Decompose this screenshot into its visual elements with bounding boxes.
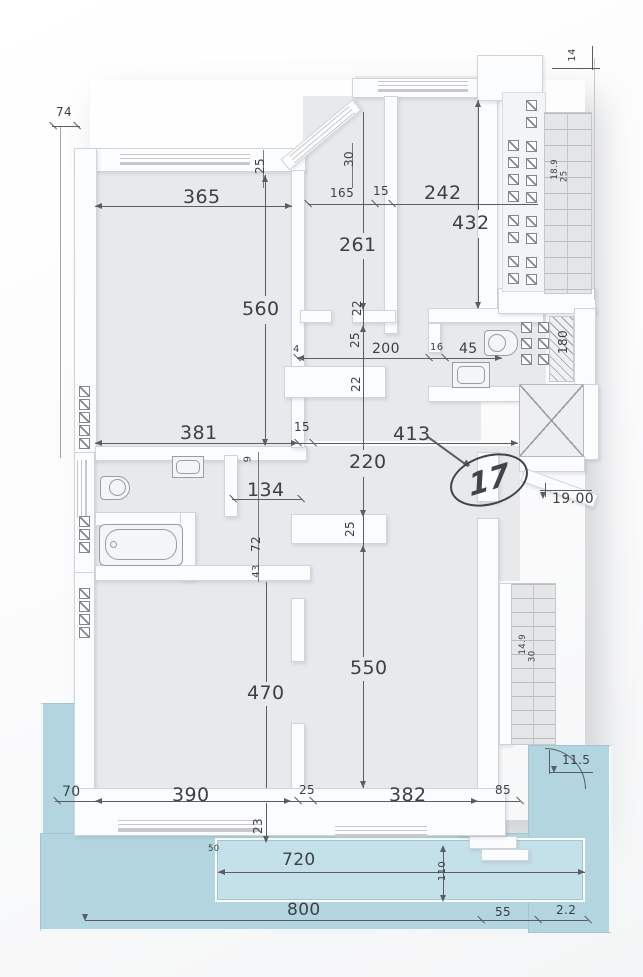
dim-label-74: 74 <box>56 106 72 118</box>
dim-line-560a <box>265 175 266 296</box>
dim-label-25b: 25 <box>344 521 356 537</box>
dim-label-4: 4 <box>293 345 300 355</box>
glass-block-icon <box>526 257 537 268</box>
glass-block-icon <box>538 354 549 365</box>
glass-block-icon <box>508 191 519 202</box>
dim-label-220: 220 <box>349 453 386 472</box>
section-marker-line <box>552 68 600 69</box>
dim-label-15-top: 15 <box>373 185 389 197</box>
glass-block-icon <box>521 338 532 349</box>
glass-block-icon <box>521 354 532 365</box>
terrace-step <box>481 849 529 861</box>
dim-arrow <box>360 545 366 552</box>
dim-label-25-top: 25 <box>254 158 266 174</box>
dim-line-center-c <box>363 477 364 657</box>
level-terrace-label: 11.5 <box>562 754 590 766</box>
glass-block-icon <box>526 100 537 111</box>
glass-block-icon <box>526 216 537 227</box>
dim-label-261: 261 <box>339 236 376 255</box>
elevator-x-icon <box>519 384 584 457</box>
glass-block-icon <box>79 399 90 410</box>
glass-block-icon <box>526 141 537 152</box>
window-bottom-left <box>118 820 260 832</box>
wall-elevator-right <box>583 384 599 460</box>
dim-arrow <box>360 325 366 332</box>
dim-line-381-413 <box>95 443 518 444</box>
dim-line-560b <box>265 324 266 445</box>
dim-label-15b: 15 <box>294 421 310 433</box>
dim-arrow <box>475 100 481 107</box>
dim-label-560: 560 <box>242 300 279 319</box>
dim-arrow <box>440 895 446 902</box>
dim-label-165: 165 <box>330 187 354 199</box>
glass-block-icon <box>79 516 90 527</box>
dim-label-365: 365 <box>183 188 220 207</box>
dim-arrow <box>95 798 102 804</box>
glass-block-icon <box>79 614 90 625</box>
glass-block-icon <box>508 157 519 168</box>
glass-block-icon <box>526 175 537 186</box>
window-bottom-middle <box>335 826 427 837</box>
glass-block-icon <box>508 140 519 151</box>
dim-line-200-45 <box>297 358 502 359</box>
stairs-upper-label-a: 18.9 <box>551 159 560 180</box>
glass-block-icon <box>79 627 90 638</box>
dim-line-470b <box>266 706 267 788</box>
glass-block-icon <box>79 588 90 599</box>
dim-label-800: 800 <box>287 902 321 919</box>
glass-block-icon <box>538 322 549 333</box>
dim-arrow <box>95 203 102 209</box>
wall-mid-vertical-a <box>291 598 305 662</box>
stairs-upper-centerline <box>567 112 568 294</box>
dim-line-800 <box>85 920 588 921</box>
unit-number: 17 <box>467 456 511 503</box>
sunken-terrace-pool <box>215 838 585 902</box>
dim-label-23: 23 <box>252 818 264 834</box>
wall-kitchen-band <box>291 514 387 544</box>
dim-arrow <box>578 869 585 875</box>
glass-block-icon <box>79 542 90 553</box>
toilet-bowl-icon-wc <box>488 334 506 352</box>
section-marker-line <box>592 46 593 70</box>
dim-label-9: 9 <box>243 456 253 463</box>
dim-line-center-a <box>363 112 364 233</box>
terrace-step <box>469 836 517 849</box>
bathtub-drain <box>110 541 117 548</box>
glass-block-icon <box>526 117 537 128</box>
dim-arrow <box>475 302 481 309</box>
dim-label-72: 72 <box>250 536 262 552</box>
dim-arrow <box>263 836 269 843</box>
dim-line-small-chain <box>258 452 259 582</box>
glass-block-icon <box>508 174 519 185</box>
dim-label-550: 550 <box>350 659 387 678</box>
dim-arrow <box>285 203 292 209</box>
glass-block-icon <box>526 274 537 285</box>
washbasin-inner <box>176 460 200 474</box>
dim-label-25c: 25 <box>299 784 315 796</box>
dim-arrow <box>284 798 291 804</box>
dim-arrow <box>495 355 502 361</box>
dim-label-242: 242 <box>424 184 461 203</box>
guide-line-left <box>60 126 61 458</box>
dim-line-165-15-242 <box>308 204 538 205</box>
stairs-upper-rail <box>594 58 595 300</box>
dim-label-390: 390 <box>172 786 209 805</box>
dim-line-center-b <box>363 259 364 450</box>
wall-corridor-chunk <box>284 366 386 398</box>
dim-arrow <box>511 440 518 446</box>
glass-block-icon <box>538 338 549 349</box>
dim-label-413: 413 <box>393 425 430 444</box>
dim-arrow <box>471 798 478 804</box>
dim-arrow <box>82 914 88 921</box>
glass-block-icon <box>508 232 519 243</box>
stairs-lower-centerline <box>533 583 534 745</box>
wall-left-room-right <box>291 170 305 448</box>
dim-line-470a <box>266 582 267 682</box>
dim-line-432b <box>478 238 479 308</box>
glass-block-icon <box>526 233 537 244</box>
dim-arrow <box>360 781 366 788</box>
wall-bath-bottom <box>95 565 311 581</box>
level-marker-icon <box>540 492 546 499</box>
wall-mid-room-right <box>384 96 398 334</box>
dim-label-200: 200 <box>372 342 400 356</box>
wall-stub-a <box>300 310 332 323</box>
glass-block-icon <box>79 425 90 436</box>
glass-block-icon <box>526 192 537 203</box>
rooms-bottom-floor <box>95 578 480 792</box>
dim-arrow <box>440 845 446 852</box>
dim-label-470: 470 <box>247 684 284 703</box>
stairs-lower-label-b: 30 <box>529 650 538 662</box>
glass-block-icon <box>79 529 90 540</box>
section-marker-label: 14 <box>568 48 578 62</box>
glass-block-icon <box>521 322 532 333</box>
dim-label-43: 43 <box>252 564 262 578</box>
dim-label-55: 55 <box>495 906 511 918</box>
dim-label-22a: 22 <box>351 300 363 316</box>
dim-label-2-2: 2.2 <box>556 904 576 916</box>
dim-label-22b: 22 <box>350 376 362 392</box>
dim-line-720 <box>218 872 585 873</box>
dim-line-432 <box>478 100 479 210</box>
dim-label-16: 16 <box>430 343 444 353</box>
dim-label-50: 50 <box>208 845 220 854</box>
dim-arrow <box>95 440 102 446</box>
glass-block-icon <box>79 412 90 423</box>
glass-block-icon <box>79 601 90 612</box>
glass-block-icon <box>79 386 90 397</box>
wall-hatch-right <box>574 308 596 392</box>
stairs-lower-label-a: 14.9 <box>519 634 528 655</box>
glass-block-icon <box>508 256 519 267</box>
washbasin-inner-wc <box>457 366 485 384</box>
dim-label-25a: 25 <box>349 332 361 348</box>
level-marker-icon <box>551 766 557 773</box>
dim-label-381: 381 <box>180 424 217 443</box>
dim-arrow <box>297 355 304 361</box>
dim-label-720: 720 <box>282 852 316 869</box>
floor-plan-canvas: 14 19.00 11.5 17 74 365 25 30 165 15 242… <box>0 0 643 977</box>
dim-label-85: 85 <box>495 784 511 796</box>
dim-label-110: 110 <box>438 861 448 881</box>
dim-arrow <box>218 869 225 875</box>
stairs-upper-label-b: 25 <box>561 170 570 182</box>
dim-label-180: 180 <box>557 330 569 354</box>
dim-arrow <box>360 510 366 517</box>
dim-label-70: 70 <box>62 785 81 799</box>
dim-label-30-top: 30 <box>343 151 355 167</box>
glass-block-icon <box>508 273 519 284</box>
dim-label-432: 432 <box>452 214 489 233</box>
glass-block-icon <box>526 158 537 169</box>
window-top-left <box>120 154 250 165</box>
dim-label-382: 382 <box>389 786 426 805</box>
toilet-bowl-icon <box>109 479 126 496</box>
dim-line-center-d <box>363 681 364 788</box>
glass-block-icon <box>79 438 90 449</box>
wall-wc2-right <box>224 455 238 517</box>
dim-label-134: 134 <box>247 481 284 500</box>
window-left-side <box>77 460 87 518</box>
level-main-label: 19.00 <box>552 492 594 506</box>
dim-label-45: 45 <box>459 342 478 356</box>
glass-block-icon <box>508 215 519 226</box>
wall-right-mid-b <box>477 518 499 792</box>
stairs-upper-icon <box>544 112 592 294</box>
window-top-middle <box>378 81 468 92</box>
